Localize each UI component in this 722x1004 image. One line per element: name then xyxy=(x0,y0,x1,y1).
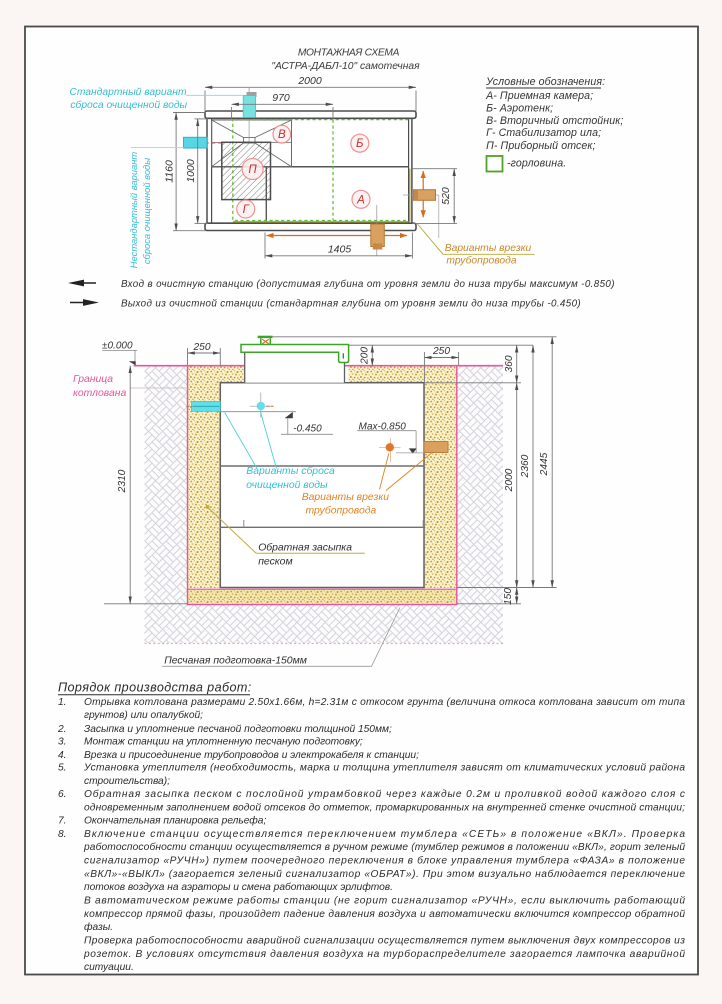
svg-text:Монтаж станции на уплотненную: Монтаж станции на уплотненную песчаную п… xyxy=(84,737,363,748)
svg-text:Выход из очистной станции (ста: Выход из очистной станции (стандартная г… xyxy=(121,298,581,309)
svg-text:Варианты врезки: Варианты врезки xyxy=(302,492,390,503)
svg-text:«ВКЛ»-«ВЫКЛ» (загорается зелен: «ВКЛ»-«ВЫКЛ» (загорается зеленый сигнали… xyxy=(84,868,685,880)
svg-text:сброса очищенной воды: сброса очищенной воды xyxy=(141,158,152,264)
svg-text:Вход в очистную станцию (допус: Вход в очистную станцию (допустимая глуб… xyxy=(121,279,615,290)
svg-text:А: А xyxy=(356,194,365,206)
svg-text:360: 360 xyxy=(504,355,515,372)
svg-text:3.: 3. xyxy=(58,737,67,748)
svg-text:Установка утеплителя (необходи: Установка утеплителя (необходимость, мар… xyxy=(83,762,685,774)
svg-text:520: 520 xyxy=(440,187,452,205)
svg-text:Окончательная планировка релье: Окончательная планировка рельефа; xyxy=(84,815,266,827)
svg-text:2445: 2445 xyxy=(539,452,550,476)
svg-text:Порядок производства работ:: Порядок производства работ: xyxy=(58,681,252,695)
svg-text:6.: 6. xyxy=(58,789,67,800)
svg-text:потоков воздуха на аэраторы и: потоков воздуха на аэраторы и смена рабо… xyxy=(84,881,393,893)
svg-text:Песчаная подготовка-150мм: Песчаная подготовка-150мм xyxy=(164,655,307,666)
svg-text:сброса очищенной воды: сброса очищенной воды xyxy=(70,99,187,111)
svg-text:Обратная засыпка: Обратная засыпка xyxy=(258,542,352,554)
svg-text:2360: 2360 xyxy=(520,454,531,478)
svg-text:В: В xyxy=(278,129,286,141)
svg-text:очищенной воды: очищенной воды xyxy=(246,480,328,491)
svg-text:А- Приемная камера;: А- Приемная камера; xyxy=(485,90,593,102)
svg-text:Проверка работоспособности ава: Проверка работоспособности аварийной сиг… xyxy=(84,935,685,947)
svg-text:Засыпка и уплотнение песчаной: Засыпка и уплотнение песчаной подготовки… xyxy=(84,724,392,735)
svg-text:7.: 7. xyxy=(58,816,67,827)
svg-text:Включение станции осуществляет: Включение станции осуществляется переклю… xyxy=(84,828,685,840)
svg-text:П: П xyxy=(248,164,257,176)
svg-text:1000: 1000 xyxy=(185,159,197,183)
svg-text:П- Приборный отсек;: П- Приборный отсек; xyxy=(486,140,595,152)
svg-text:-горловина.: -горловина. xyxy=(507,158,566,170)
svg-text:970: 970 xyxy=(272,92,290,104)
svg-text:2000: 2000 xyxy=(504,468,515,492)
svg-text:8.: 8. xyxy=(58,829,67,840)
svg-text:МОНТАЖНАЯ СХЕМА: МОНТАЖНАЯ СХЕМА xyxy=(298,48,400,59)
svg-text:5.: 5. xyxy=(58,763,67,774)
svg-text:строительства);: строительства); xyxy=(84,776,170,787)
svg-text:Г- Стабилизатор ила;: Г- Стабилизатор ила; xyxy=(486,127,601,139)
svg-text:Б: Б xyxy=(356,138,364,150)
svg-text:грунтов) или опалубкой;: грунтов) или опалубкой; xyxy=(84,709,203,721)
svg-text:Граница: Граница xyxy=(73,374,113,385)
svg-text:250: 250 xyxy=(432,346,450,357)
svg-text:сигнализатор «РУЧН») путем поо: сигнализатор «РУЧН») путем поочередного … xyxy=(84,855,685,867)
svg-text:трубопровода: трубопровода xyxy=(446,255,516,267)
svg-text:розеток. В условиях отсутстви: розеток. В условиях отсутствия давления … xyxy=(83,948,685,960)
svg-text:работоспособности станции осущ: работоспособности станции осуществляется… xyxy=(83,841,685,853)
svg-text:200: 200 xyxy=(360,347,371,365)
svg-text:1.: 1. xyxy=(58,697,67,708)
svg-text:250: 250 xyxy=(193,342,211,353)
svg-text:В автоматическом режиме работы: В автоматическом режиме работы станции (… xyxy=(84,895,685,907)
svg-text:Обратная засыпка песком с посл: Обратная засыпка песком с послойной утра… xyxy=(84,788,685,800)
svg-text:-0.450: -0.450 xyxy=(293,423,322,434)
svg-text:2310: 2310 xyxy=(117,469,128,493)
svg-text:одновременным заполнением водо: одновременным заполнением водой отсеков … xyxy=(84,803,685,814)
svg-text:4.: 4. xyxy=(58,750,67,761)
svg-text:1405: 1405 xyxy=(328,243,352,255)
svg-text:2000: 2000 xyxy=(297,75,322,87)
svg-text:Варианты врезки: Варианты врезки xyxy=(445,243,532,254)
svg-text:песком: песком xyxy=(258,556,292,567)
svg-text:Условные обозначения:: Условные обозначения: xyxy=(485,76,605,88)
svg-text:трубопровода: трубопровода xyxy=(306,505,377,517)
svg-text:Нестандартный вариант: Нестандартный вариант xyxy=(128,152,139,269)
svg-text:Б- Аэротенк;: Б- Аэротенк; xyxy=(486,103,553,115)
svg-text:Стандартный вариант: Стандартный вариант xyxy=(69,87,187,98)
svg-text:2.: 2. xyxy=(57,724,67,735)
svg-text:Варианты сброса: Варианты сброса xyxy=(246,465,335,477)
svg-text:компрессор прямой фазы, произо: компрессор прямой фазы, произойдет паден… xyxy=(84,908,685,920)
svg-text:В- Вторичный отстойник;: В- Вторичный отстойник; xyxy=(486,115,623,127)
svg-text:"АСТРА-ДАБЛ-10" самотечная: "АСТРА-ДАБЛ-10" самотечная xyxy=(271,61,420,72)
svg-text:1160: 1160 xyxy=(164,160,176,183)
svg-text:Г: Г xyxy=(243,204,250,216)
svg-text:котлована: котлована xyxy=(73,388,126,399)
svg-text:150: 150 xyxy=(503,588,514,605)
svg-text:Врезка и присоединение трубопр: Врезка и присоединение трубопроводов и э… xyxy=(84,749,419,761)
svg-text:Отрывка котлована размерами 2.: Отрывка котлована размерами 2.50х1.66м, … xyxy=(84,697,685,708)
svg-text:фазы.: фазы. xyxy=(84,921,113,933)
svg-text:ситуации.: ситуации. xyxy=(84,962,134,973)
